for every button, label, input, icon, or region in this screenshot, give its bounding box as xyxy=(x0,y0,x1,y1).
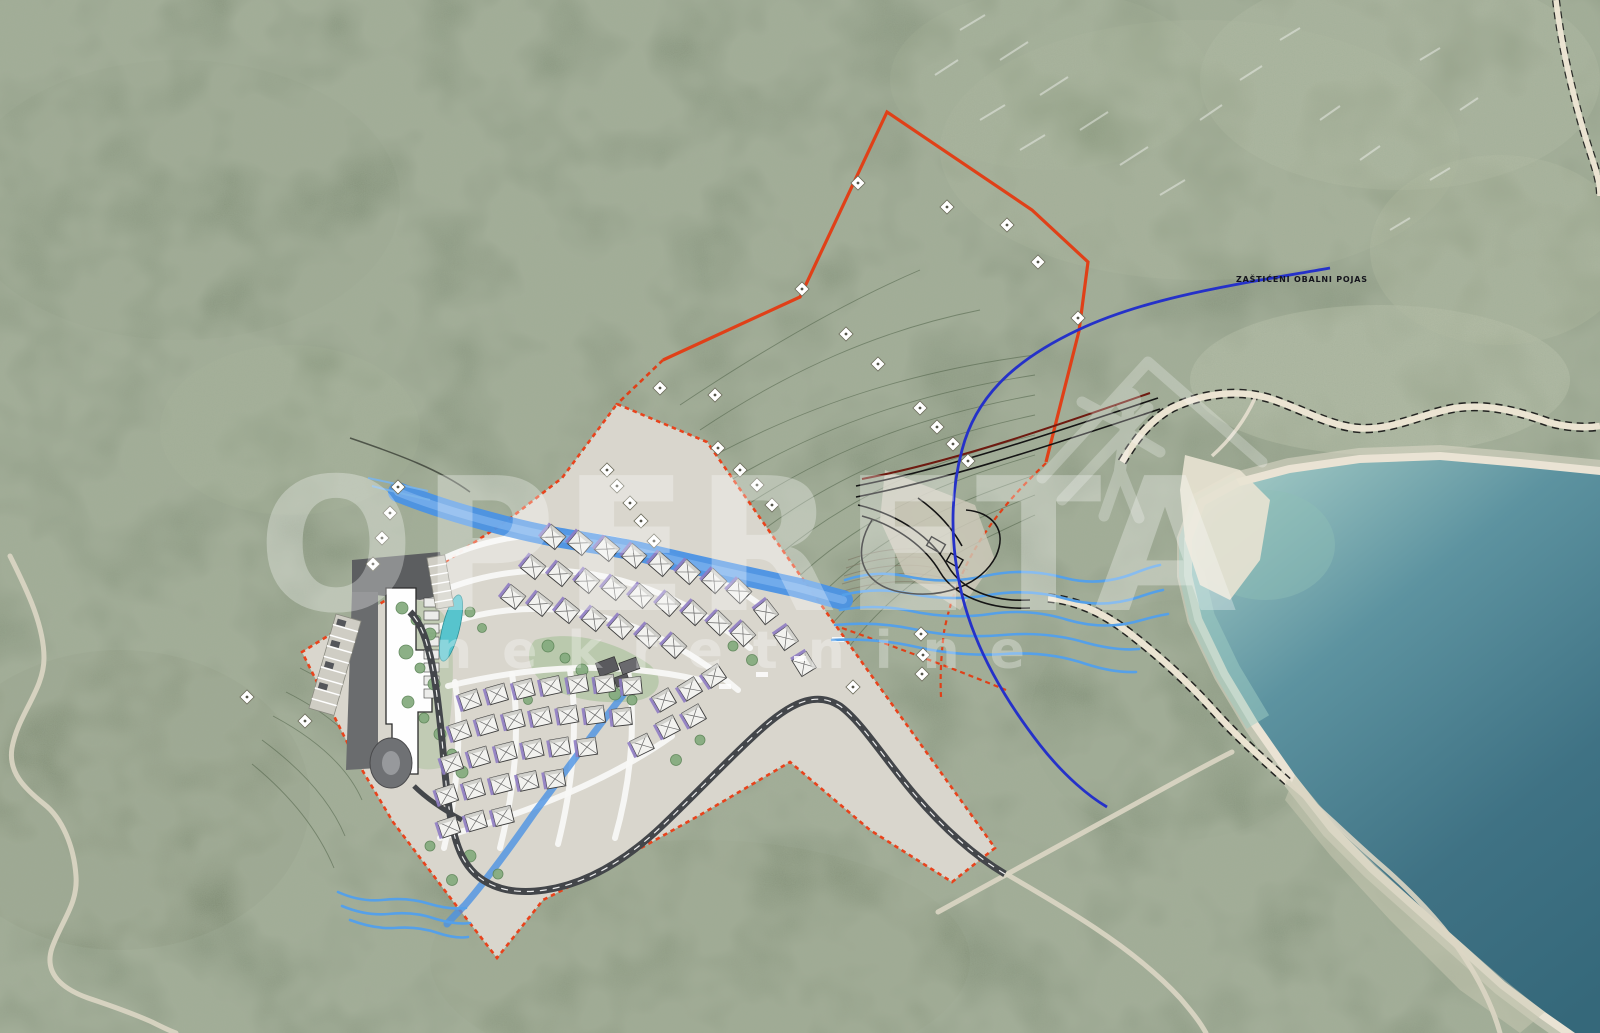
watermark-subtitle: nekretnine xyxy=(435,621,1055,681)
dropoff-island xyxy=(382,751,400,775)
villa xyxy=(573,737,597,757)
coastal-belt-label: ZAŠTIĆENI OBALNI POJAS xyxy=(1236,273,1368,284)
villa xyxy=(609,708,633,727)
villa xyxy=(581,705,605,725)
aerial-masterplan-image: ZAŠTIĆENI OBALNI POJAS OPERETA nekretnin… xyxy=(0,0,1600,1033)
villa xyxy=(541,769,566,790)
villa xyxy=(546,737,571,758)
villa xyxy=(554,705,579,726)
site-plan-map: ZAŠTIĆENI OBALNI POJAS OPERETA nekretnin… xyxy=(0,0,1600,1033)
